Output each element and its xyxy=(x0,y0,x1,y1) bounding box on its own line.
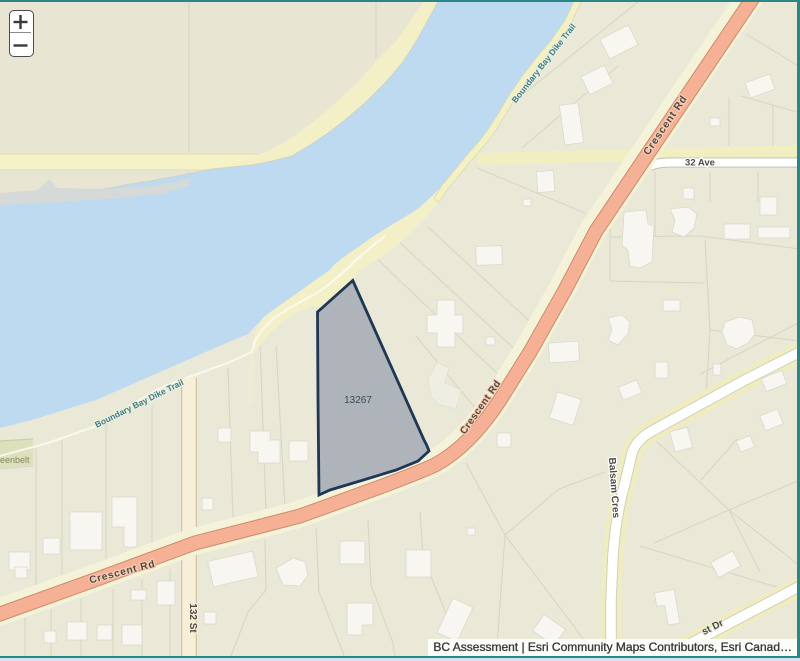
svg-text:13267: 13267 xyxy=(344,395,372,406)
svg-text:132 St: 132 St xyxy=(187,603,198,633)
svg-text:32 Ave: 32 Ave xyxy=(685,158,715,169)
svg-text:eenbelt: eenbelt xyxy=(0,455,30,465)
